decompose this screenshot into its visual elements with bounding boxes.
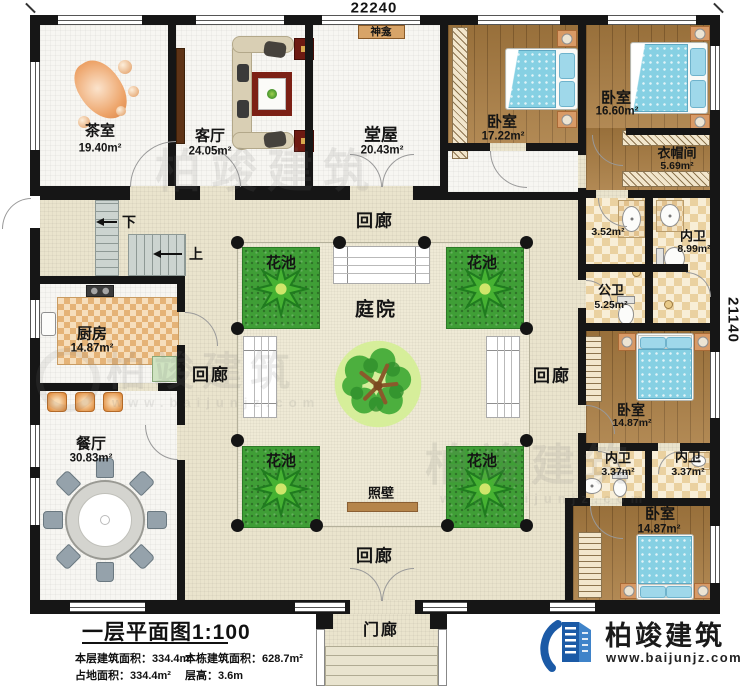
label-corridor-left: 回廊 <box>192 367 230 384</box>
stair-flight-down <box>95 200 119 276</box>
stove-icon <box>86 285 114 297</box>
wall-segment <box>586 190 596 198</box>
wall-segment <box>578 15 586 155</box>
tea-stone-pebble <box>116 106 126 116</box>
label-living-name: 客厅 <box>195 129 225 144</box>
bed-pillow <box>666 337 692 349</box>
label-bed2-area: 16.60m² <box>596 106 639 118</box>
brand-block: 柏竣建筑 www.baijunjz.com <box>535 606 750 686</box>
dimension-right: 21140 <box>726 297 741 343</box>
screen-wall-bar <box>347 502 418 512</box>
wall-segment <box>440 25 448 193</box>
label-bed4-area: 14.87m² <box>638 524 681 536</box>
column <box>333 236 346 249</box>
window <box>710 526 720 583</box>
column <box>441 519 454 532</box>
label-cloak-name: 衣帽间 <box>657 147 696 160</box>
window <box>58 15 142 25</box>
bed-pillow <box>690 48 706 76</box>
column <box>310 519 323 532</box>
wall-segment <box>30 276 177 284</box>
stat-floor-area: 本层建筑面积：334.4m² <box>75 650 193 666</box>
window <box>30 425 40 467</box>
bed-mattress <box>638 536 692 584</box>
label-dining-area: 30.83m² <box>70 453 113 465</box>
tea-stone-pebble <box>118 60 132 74</box>
bed-fold <box>632 44 646 112</box>
wall-segment <box>586 323 710 331</box>
courtyard-bench-north <box>333 246 430 284</box>
wall-segment <box>448 143 490 151</box>
nightstand <box>557 111 577 128</box>
floor-plan-canvas: 柏竣建筑 柏竣建筑 www.baijunjz.com 柏竣建筑 www.baij… <box>0 0 750 691</box>
window <box>478 15 560 25</box>
brand-logo-icon <box>538 612 602 676</box>
bed-pillow <box>640 586 666 598</box>
label-flower-bed-tr: 花池 <box>467 256 497 271</box>
label-hall-area: 20.43m² <box>361 145 404 157</box>
wall-segment <box>413 186 440 200</box>
window <box>608 15 696 25</box>
label-ensuite2-area: 3.37m² <box>601 467 634 478</box>
column <box>520 236 533 249</box>
stair-up-arrow <box>160 253 182 255</box>
wall-segment <box>177 276 185 312</box>
column <box>231 236 244 249</box>
brand-company-name: 柏竣建筑 <box>605 614 725 653</box>
table-plant-icon <box>267 89 277 99</box>
label-kitchen-area: 14.87m² <box>71 343 114 355</box>
porch-pilaster <box>430 612 447 629</box>
label-bed3-name: 卧室 <box>617 403 645 417</box>
column <box>231 434 244 447</box>
nightstand <box>690 26 710 41</box>
wall-segment <box>526 143 578 151</box>
label-tea-name: 茶室 <box>85 124 115 139</box>
bed-pillow <box>690 80 706 108</box>
courtyard-tree-icon <box>332 338 424 430</box>
label-ensuite3-name: 内卫 <box>675 451 701 464</box>
column <box>231 519 244 532</box>
watermark-site: www.baijunjz.com <box>112 396 320 409</box>
label-hall-name: 堂屋 <box>364 127 398 144</box>
column <box>520 519 533 532</box>
sofa-cushion <box>237 64 249 82</box>
label-shrine: 神龛 <box>371 27 392 38</box>
label-bed2-name: 卧室 <box>601 91 631 106</box>
window <box>30 62 40 150</box>
label-kitchen-name: 厨房 <box>77 327 107 342</box>
wall-segment <box>40 186 130 200</box>
dimension-tick <box>713 3 724 14</box>
bed-pillow <box>640 337 666 349</box>
floor-drain-icon <box>664 300 673 309</box>
label-cloak-area: 5.69m² <box>660 161 693 172</box>
label-bed4-name: 卧室 <box>645 507 675 522</box>
label-public-bath-area: 5.25m² <box>594 300 627 311</box>
window <box>30 300 40 338</box>
wall-segment <box>440 192 586 200</box>
dimension-top: 22240 <box>351 1 398 16</box>
window <box>710 46 720 110</box>
label-bed1-area: 17.22m² <box>482 131 525 143</box>
dining-chair <box>43 511 63 529</box>
label-corridor-top: 回廊 <box>356 213 394 230</box>
bed-pillow <box>666 586 692 598</box>
title-underline <box>82 642 228 644</box>
dining-table-center <box>100 515 110 525</box>
porch-steps <box>325 646 438 686</box>
wall-segment <box>626 128 710 135</box>
dining-chair <box>147 511 167 529</box>
door-arc <box>2 198 31 229</box>
bed-mattress <box>638 349 692 399</box>
bed-pillow <box>559 81 575 107</box>
bed-fold <box>507 50 520 108</box>
courtyard-bench-east <box>486 336 520 418</box>
column <box>231 322 244 335</box>
label-dining-name: 餐厅 <box>76 437 106 452</box>
tv-cabinet <box>176 48 185 144</box>
wall-segment <box>177 460 185 600</box>
label-bed1-name: 卧室 <box>487 115 517 130</box>
wall-segment <box>565 506 573 600</box>
label-stair-down: 下 <box>122 215 136 229</box>
nightstand <box>690 114 710 129</box>
label-living-area: 24.05m² <box>189 146 232 158</box>
sink-icon <box>660 204 680 227</box>
dimension-tick <box>25 3 36 14</box>
label-bathA-area: 3.52m² <box>591 227 624 238</box>
stat-floor-height: 层高：3.6m <box>185 667 243 683</box>
bed4-closet <box>578 532 602 598</box>
watermark-site: www.baijunjz.com <box>440 492 648 505</box>
window <box>710 352 720 418</box>
wall-segment <box>628 190 710 198</box>
label-screen-wall: 照壁 <box>368 487 394 500</box>
watermark-logo-icon <box>36 348 100 412</box>
label-porch: 门廊 <box>363 623 399 639</box>
wall-segment <box>578 188 586 280</box>
porch-rail <box>438 629 447 686</box>
column <box>418 236 431 249</box>
wardrobe <box>622 171 710 187</box>
label-ensuite1-area: 8.99m² <box>677 244 710 255</box>
label-bed3-area: 14.87m² <box>612 418 651 429</box>
nightstand <box>618 333 636 351</box>
sofa-cushion <box>237 100 249 118</box>
nightstand <box>557 30 577 47</box>
kitchen-sink-icon <box>41 312 56 336</box>
bed-pillow <box>559 53 575 79</box>
window <box>30 478 40 525</box>
label-ensuite2-name: 内卫 <box>605 452 631 465</box>
label-corridor-bottom: 回廊 <box>356 548 394 565</box>
wall-segment <box>578 308 586 405</box>
tea-stone-pebble <box>128 86 139 97</box>
dining-chair <box>96 562 114 582</box>
label-flower-bed-br: 花池 <box>467 454 497 469</box>
stat-building-area: 本栋建筑面积：628.7m² <box>185 650 303 666</box>
wall-segment <box>645 198 653 264</box>
column <box>520 322 533 335</box>
title-block: 一层平面图1:100 本层建筑面积：334.4m² 本栋建筑面积：628.7m²… <box>0 606 330 691</box>
wall-segment <box>586 264 688 272</box>
label-corridor-right: 回廊 <box>533 368 571 385</box>
label-courtyard: 庭院 <box>355 301 397 320</box>
label-ensuite1-name: 内卫 <box>680 230 706 243</box>
window <box>196 15 284 25</box>
label-flower-bed-tl: 花池 <box>266 256 296 271</box>
porch-gap-floor <box>350 600 415 614</box>
armchair <box>263 41 287 59</box>
label-stair-up: 上 <box>189 247 203 261</box>
brand-website: www.baijunjz.com <box>606 650 742 665</box>
label-ensuite3-area: 3.37m² <box>671 467 704 478</box>
stat-land-area: 占地面积：334.4m² <box>75 667 171 683</box>
bed1-closet <box>452 27 468 159</box>
stair-down-arrow <box>103 221 117 223</box>
wall-left <box>30 228 40 614</box>
window <box>423 602 467 612</box>
window <box>322 15 420 25</box>
label-tea-area: 19.40m² <box>79 143 122 155</box>
label-public-bath-name: 公卫 <box>598 284 624 297</box>
label-flower-bed-bl: 花池 <box>266 454 296 469</box>
